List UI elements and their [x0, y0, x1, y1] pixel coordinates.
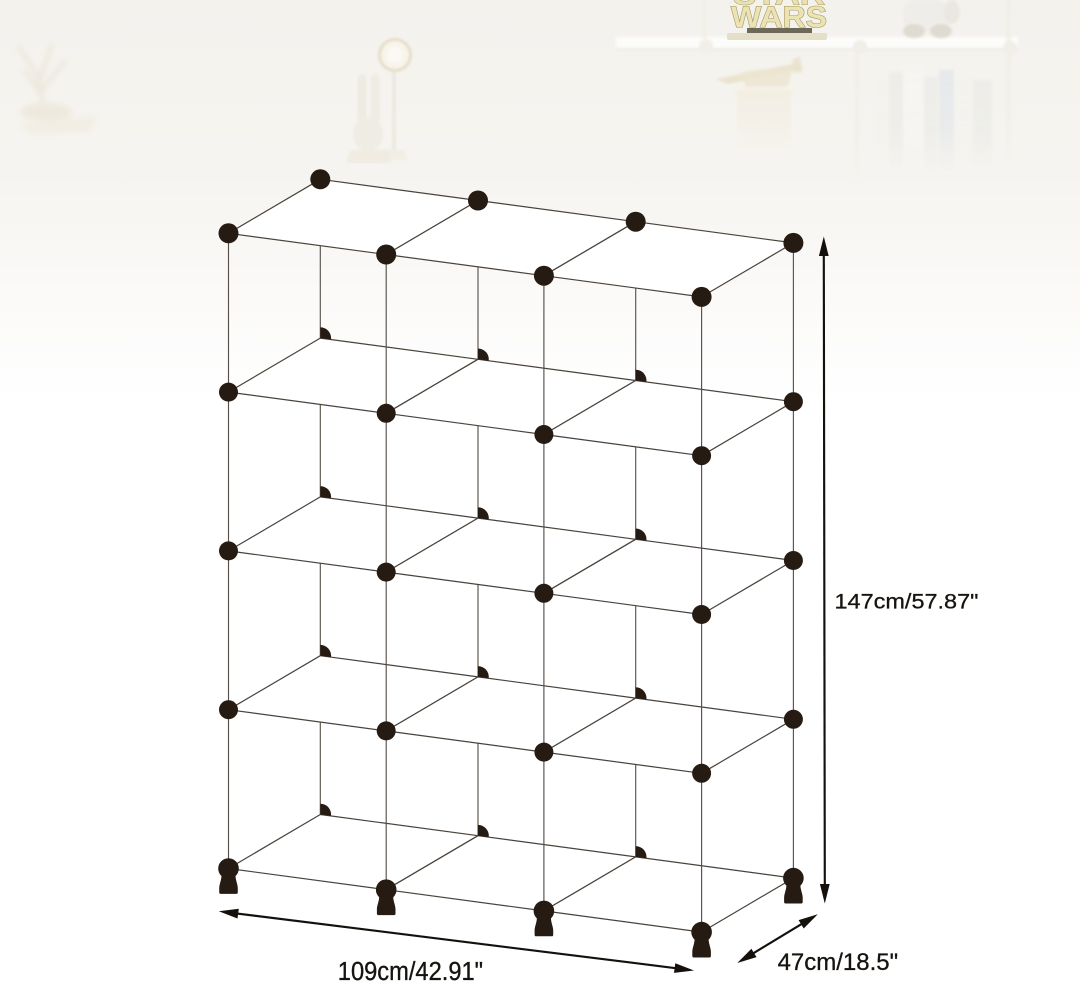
svg-text:147cm/57.87": 147cm/57.87": [835, 590, 979, 614]
svg-text:109cm/42.91": 109cm/42.91": [338, 956, 483, 986]
svg-text:47cm/18.5": 47cm/18.5": [778, 949, 899, 976]
